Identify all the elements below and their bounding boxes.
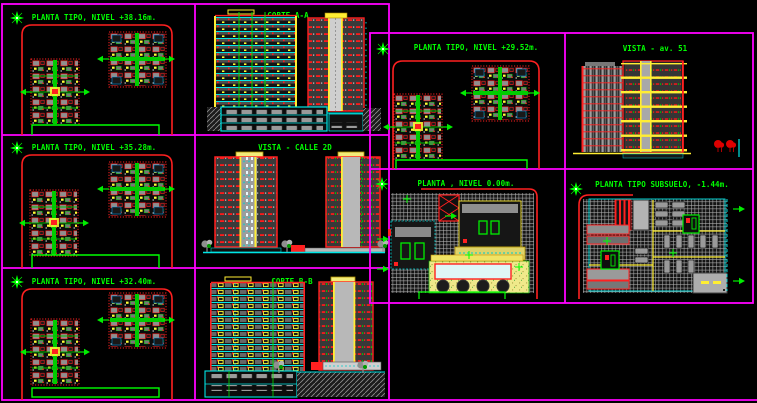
panel-title: VISTA - av. 51 [623, 44, 688, 53]
tower-footprint-right [455, 201, 525, 260]
site-plan [377, 189, 537, 299]
floorplan-cluster-right [472, 66, 529, 121]
ground-line [573, 154, 691, 159]
parked-cars [209, 374, 293, 380]
street-line [32, 125, 159, 135]
viewport-planta-subsuelo[interactable]: PLANTA TIPO SUBSUELO, -1.44m. [569, 180, 745, 299]
stair-fixture [683, 215, 699, 233]
viewport-vista-av-51[interactable]: VISTA - av. 51 [573, 44, 739, 158]
floorplan-cluster-right [109, 162, 166, 217]
pool [435, 264, 511, 279]
floorplan-cluster-left [394, 94, 442, 160]
tree-icon [497, 280, 509, 292]
direction-arrow-icon [77, 220, 89, 226]
tree-icon [477, 280, 489, 292]
street-line [396, 160, 527, 169]
panel-title: PLANTA TIPO, NIVEL +35.28m. [32, 143, 157, 152]
direction-arrow-icon [441, 124, 453, 130]
red-tree-icon [726, 140, 736, 152]
north-reference-icon [10, 11, 24, 25]
tree-icon [281, 240, 292, 252]
direction-arrow-icon [78, 89, 90, 95]
direction-arrow-icon [19, 220, 31, 226]
stair-fixture [601, 251, 619, 269]
viewport-vista-calle-2d[interactable]: VISTA - CALLE 2D [201, 143, 388, 253]
viewport-planta-nivel-35-28[interactable]: PLANTA TIPO, NIVEL +35.28m. [10, 141, 175, 268]
tree-icon [437, 280, 449, 292]
red-tree-icon [714, 140, 724, 152]
north-reference-icon [569, 182, 583, 196]
viewport-corte-b-b[interactable]: CORTE B-B [205, 277, 385, 397]
ramp-slab [693, 273, 727, 293]
floorplan-cluster-right [109, 293, 166, 348]
direction-arrow-icon [733, 206, 745, 212]
viewport-planta-nivel-32-40[interactable]: PLANTA TIPO, NIVEL +32.40m. [10, 275, 175, 400]
tower-elevation-2 [326, 152, 380, 247]
north-reference-icon [375, 177, 389, 191]
direction-arrow-icon [377, 266, 389, 272]
panel-title: PLANTA TIPO, NIVEL +38.16m. [32, 13, 157, 22]
street-line [32, 388, 159, 397]
north-reference-icon [10, 275, 24, 289]
tree-icon [357, 361, 368, 373]
floorplan-cluster-left [31, 319, 79, 385]
floorplan-cluster-left [31, 59, 79, 125]
direction-arrow-icon [97, 186, 109, 192]
cad-drawing: PLANTA TIPO, NIVEL +38.16m. CORTE A-A [0, 0, 757, 403]
viewport-planta-nivel-38-16[interactable]: PLANTA TIPO, NIVEL +38.16m. [10, 11, 175, 135]
tree-icon [201, 240, 212, 252]
floorplan-cluster-right [109, 32, 166, 87]
direction-arrow-icon [460, 90, 472, 96]
direction-arrow-icon [733, 278, 745, 284]
panel-title: PLANTA TIPO, NIVEL +29.52m. [414, 43, 539, 52]
tree-icon [457, 280, 469, 292]
north-reference-icon [376, 42, 390, 56]
north-reference-icon [10, 141, 24, 155]
viewport-planta-nivel-0-00[interactable]: PLANTA , NIVEL 0.00m. [375, 177, 537, 299]
garden [429, 255, 529, 293]
basement-section [205, 371, 385, 397]
parking-plan [579, 195, 745, 299]
viewport-planta-nivel-29-52[interactable]: PLANTA TIPO, NIVEL +29.52m. [376, 42, 540, 169]
direction-arrow-icon [97, 56, 109, 62]
stair-core [439, 195, 459, 221]
tower-elevation-1 [215, 152, 277, 247]
floorplan-cluster-left [30, 190, 78, 256]
elevator-core [633, 200, 649, 230]
tower-footprint-left [388, 221, 435, 269]
direction-arrow-icon [97, 317, 109, 323]
street-line [32, 255, 159, 268]
building-elevation-right [308, 13, 366, 111]
panel-title: PLANTA , NIVEL 0.00m. [418, 179, 515, 188]
viewport-corte-a-a[interactable]: CORTE A-A [207, 10, 381, 131]
panel-title: PLANTA TIPO SUBSUELO, -1.44m. [595, 180, 729, 189]
panel-title: PLANTA TIPO, NIVEL +32.40m. [32, 277, 157, 286]
direction-arrow-icon [78, 349, 90, 355]
parked-cars [225, 109, 323, 115]
cad-sheet: PLANTA TIPO, NIVEL +38.16m. CORTE A-A [0, 0, 757, 403]
building-elevation [582, 61, 688, 152]
panel-title: VISTA - CALLE 2D [258, 143, 332, 152]
